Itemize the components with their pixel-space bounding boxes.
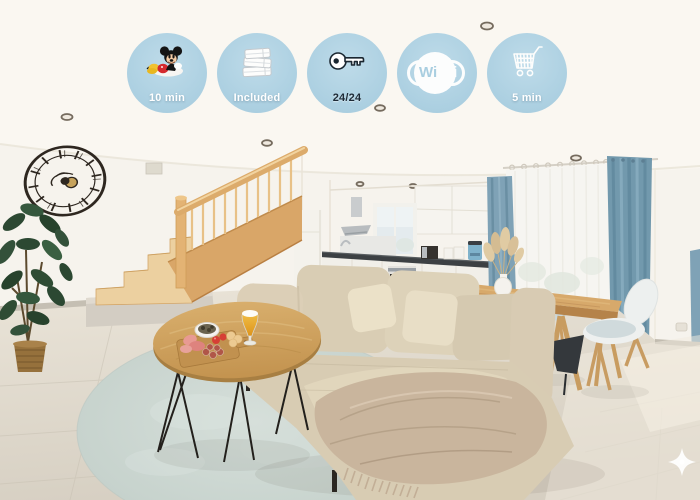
wifi-logo-icon: Wi Fi <box>407 50 467 96</box>
wall-vent <box>146 163 162 174</box>
kettle <box>454 247 464 259</box>
badge-label: 5 min <box>487 92 567 104</box>
toaster <box>444 248 453 259</box>
olive-bowl <box>195 323 219 338</box>
wicker-basket <box>13 341 47 373</box>
shopping-cart-icon <box>503 42 551 84</box>
wall-outlet <box>676 323 687 331</box>
throw-pillow <box>347 283 398 334</box>
wifi-logo-text-wi: Wi <box>419 64 437 81</box>
microwave <box>421 246 438 259</box>
badge-linens-included: Included <box>217 33 297 113</box>
apartment-photo: 10 min Included <box>0 0 700 500</box>
badge-disneyland-distance: 10 min <box>127 33 207 113</box>
mickey-mouse-icon <box>143 42 191 84</box>
sheer-curtain <box>506 163 612 308</box>
badge-key-24h: 24/24 <box>307 33 387 113</box>
towels-icon <box>233 42 281 84</box>
badge-supermarket-distance: 5 min <box>487 33 567 113</box>
badge-label: 10 min <box>127 92 207 104</box>
coffee-machine <box>468 241 482 260</box>
badge-label: 24/24 <box>307 92 387 104</box>
range-hood <box>351 197 362 217</box>
badge-wifi: Wi Fi <box>397 33 477 113</box>
key-icon <box>323 42 371 84</box>
badge-label: Included <box>217 92 297 104</box>
throw-pillow <box>401 289 458 346</box>
wifi-logo-text-fi: Fi <box>444 64 457 81</box>
